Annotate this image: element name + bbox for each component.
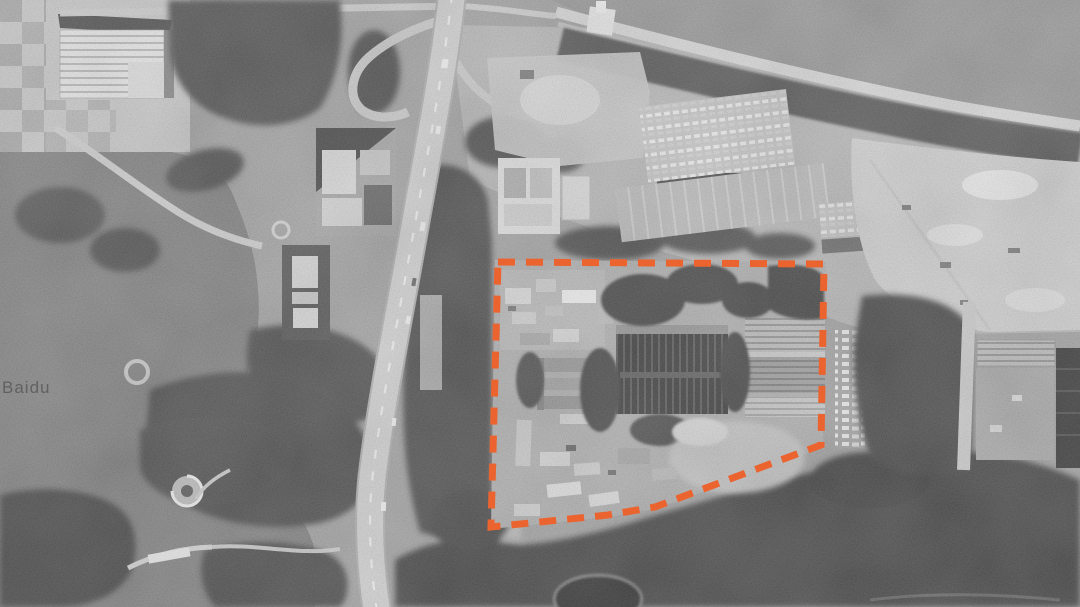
satellite-map-view: Baidu — [0, 0, 1080, 607]
satellite-map-canvas: Baidu — [0, 0, 1080, 607]
baidu-watermark: Baidu — [2, 378, 50, 397]
photo-grain-texture — [0, 0, 1080, 607]
